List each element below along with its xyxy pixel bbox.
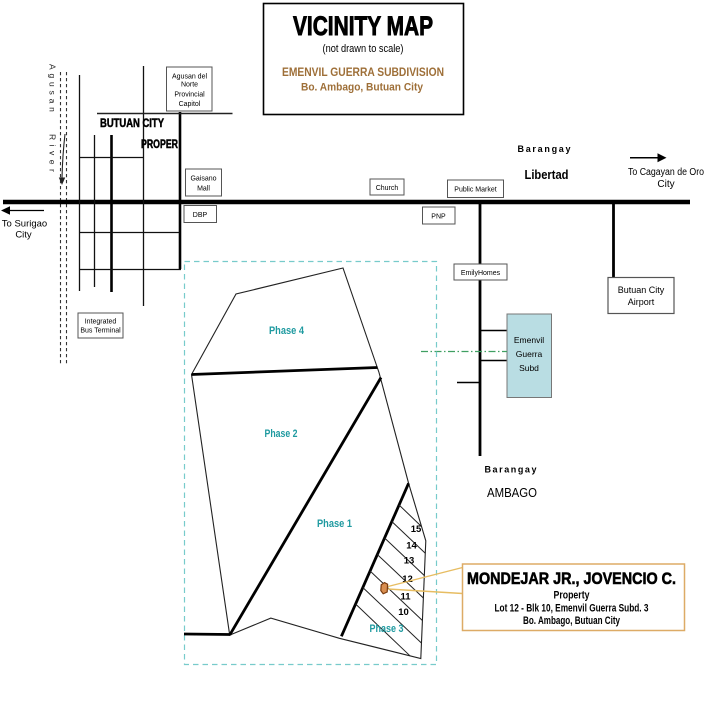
svg-text:City: City [657,179,674,190]
svg-text:River: River [48,134,58,176]
svg-text:Phase 2: Phase 2 [265,428,298,440]
svg-text:Phase 1: Phase 1 [317,518,352,530]
svg-text:Guerra: Guerra [516,349,543,359]
svg-text:Barangay: Barangay [518,144,571,154]
svg-text:Agusan: Agusan [48,64,58,116]
svg-text:Subd: Subd [519,363,539,373]
svg-text:Norte: Norte [181,82,198,89]
svg-text:EmilyHomes: EmilyHomes [461,270,501,277]
svg-text:Libertad: Libertad [525,168,569,182]
svg-text:Airport: Airport [628,297,655,307]
svg-text:Agusan del: Agusan del [172,74,207,81]
svg-text:Public Market: Public Market [454,187,496,194]
svg-text:15: 15 [411,524,422,535]
svg-text:Phase 4: Phase 4 [269,325,305,337]
svg-text:Phase 3: Phase 3 [370,623,404,635]
svg-text:PROPER: PROPER [141,139,179,151]
svg-text:Integrated: Integrated [85,319,117,326]
svg-text:AMBAGO: AMBAGO [487,485,537,500]
svg-text:Property: Property [554,590,591,602]
svg-text:Bo. Ambago, Butuan City: Bo. Ambago, Butuan City [523,615,621,627]
svg-text:Butuan City: Butuan City [618,285,665,295]
svg-text:11: 11 [400,592,411,603]
svg-text:Emenvil: Emenvil [514,335,544,345]
svg-text:Barangay: Barangay [485,465,537,475]
svg-text:Capitol: Capitol [179,101,201,108]
svg-text:PNP: PNP [431,214,446,221]
svg-text:To Surigao: To Surigao [2,219,47,230]
svg-text:VICINITY MAP: VICINITY MAP [293,11,433,41]
svg-text:10: 10 [398,607,409,618]
svg-text:(not drawn to scale): (not drawn to scale) [323,43,404,55]
svg-text:Church: Church [376,185,399,192]
svg-text:Bus Terminal: Bus Terminal [80,328,121,335]
svg-text:City: City [15,230,32,241]
svg-text:BUTUAN CITY: BUTUAN CITY [100,118,164,130]
svg-text:Lot 12 - Blk 10, Emenvil Guerr: Lot 12 - Blk 10, Emenvil Guerra Subd. 3 [495,603,649,615]
svg-text:MONDEJAR JR., JOVENCIO C.: MONDEJAR JR., JOVENCIO C. [467,569,676,588]
svg-text:14: 14 [406,541,417,552]
svg-text:Gaisano: Gaisano [190,176,216,183]
svg-text:EMENVIL GUERRA SUBDIVISION: EMENVIL GUERRA SUBDIVISION [282,67,444,79]
svg-text:Bo. Ambago, Butuan City: Bo. Ambago, Butuan City [301,82,424,94]
svg-text:Mall: Mall [197,186,210,193]
svg-text:DBP: DBP [193,212,208,219]
svg-text:To Cagayan de Oro: To Cagayan de Oro [628,167,704,178]
svg-text:12: 12 [402,574,413,585]
svg-text:13: 13 [404,556,415,567]
svg-text:Provincial: Provincial [174,92,205,99]
